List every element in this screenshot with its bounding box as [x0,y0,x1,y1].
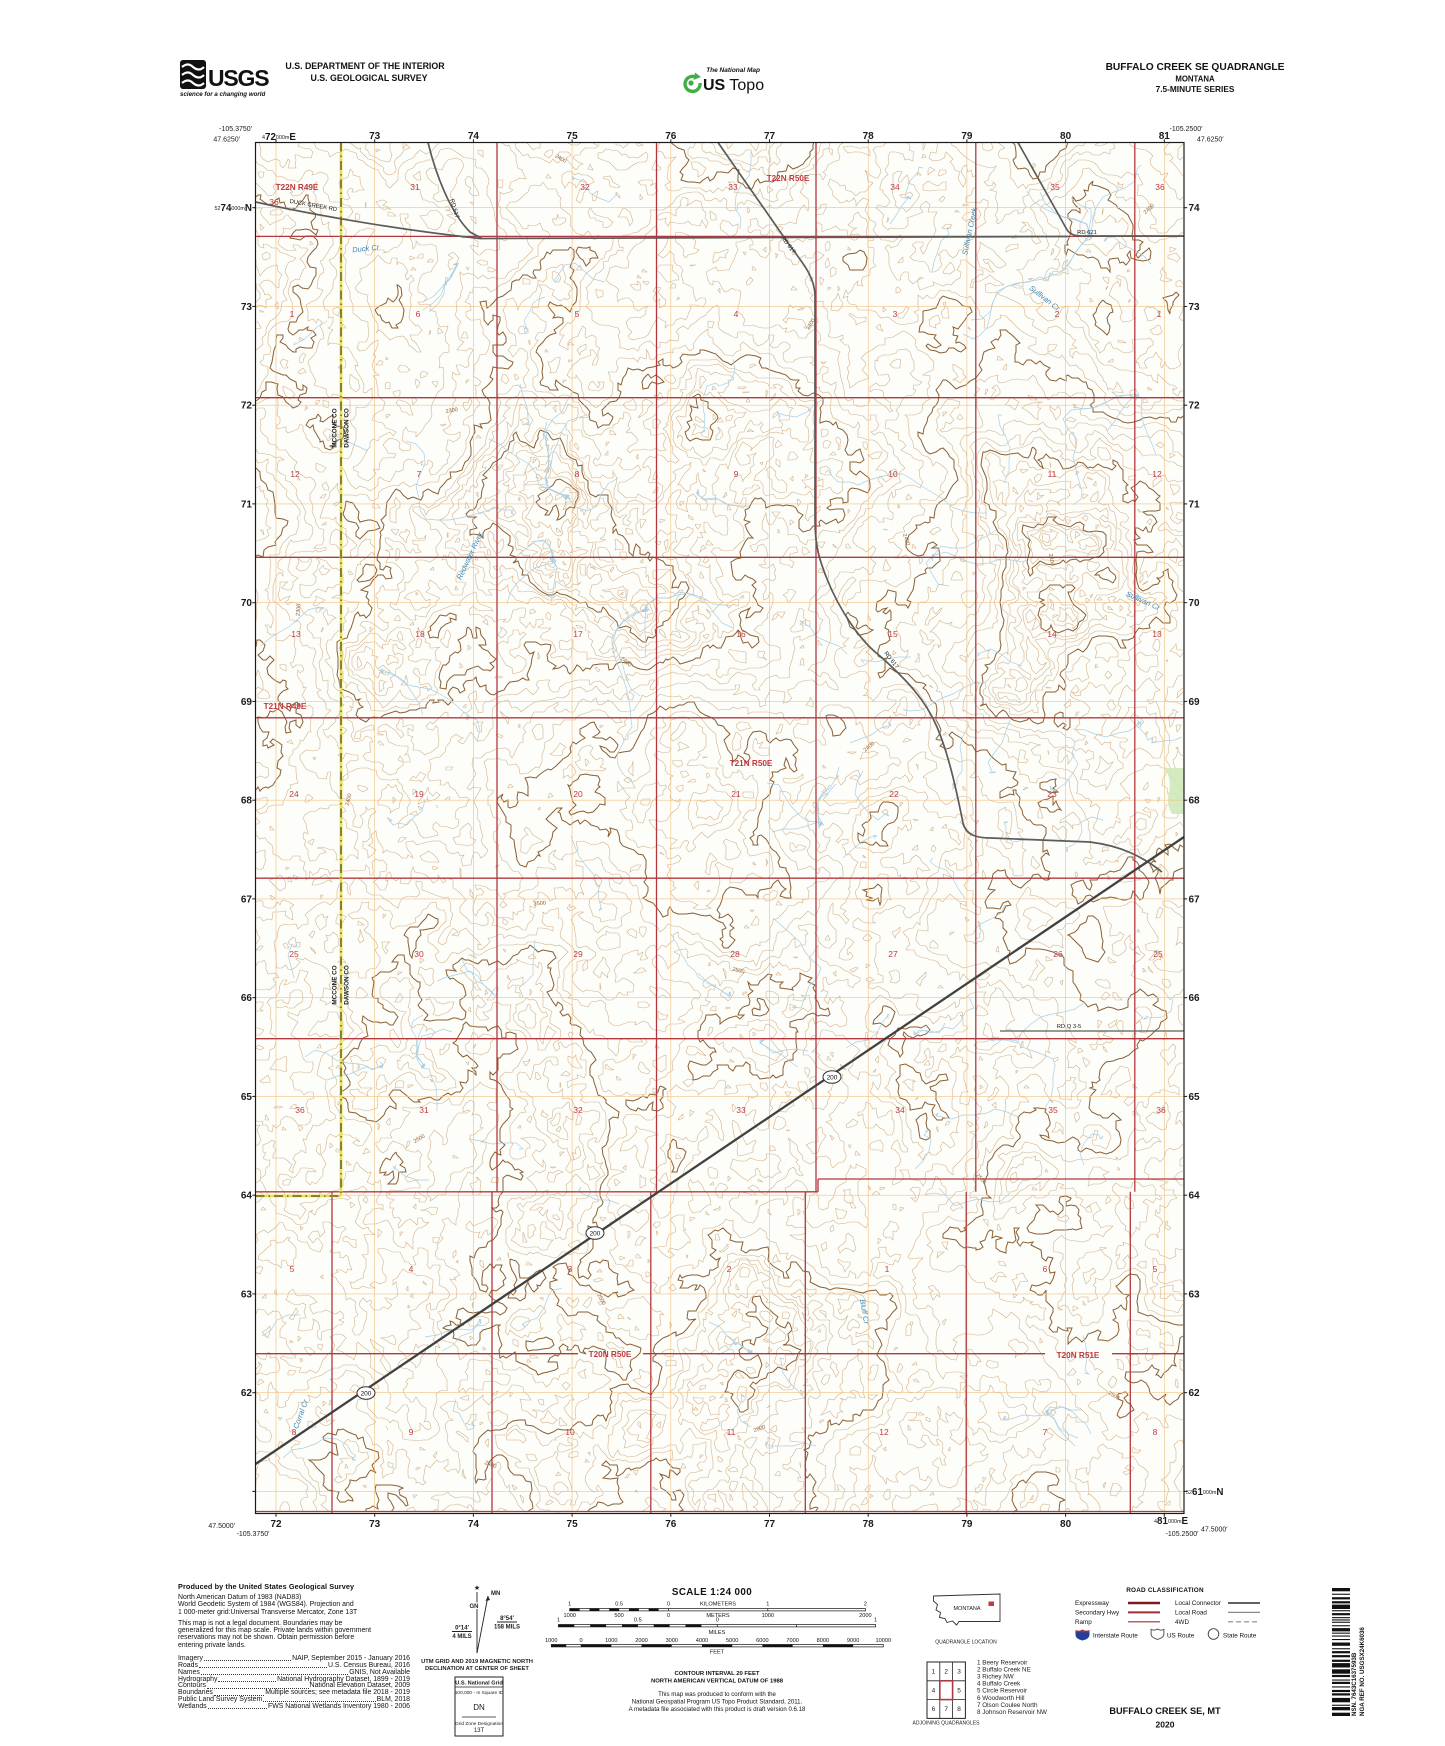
svg-text:500: 500 [614,1613,623,1619]
svg-text:12: 12 [290,469,300,479]
svg-text:T21N R49E: T21N R49E [264,702,307,711]
svg-text:79: 79 [961,131,973,142]
svg-text:27: 27 [888,949,898,959]
svg-text:8: 8 [575,469,580,479]
svg-text:T22N R50E: T22N R50E [767,174,810,183]
svg-text:2 Buffalo Creek NE: 2 Buffalo Creek NE [977,1667,1031,1674]
svg-text:7: 7 [1043,1427,1048,1437]
svg-text:34: 34 [890,182,900,192]
svg-text:CONTOUR INTERVAL 20 FEET: CONTOUR INTERVAL 20 FEET [675,1671,760,1677]
svg-text:6000: 6000 [756,1638,768,1644]
svg-text:8°54′: 8°54′ [500,1616,514,1622]
svg-text:72: 72 [1189,401,1201,412]
svg-text:MILES: MILES [709,1630,726,1636]
svg-text:DECLINATION AT CENTER OF SHEET: DECLINATION AT CENTER OF SHEET [425,1666,529,1672]
svg-text:31: 31 [410,182,420,192]
svg-text:BUFFALO CREEK SE QUADRANGLE: BUFFALO CREEK SE QUADRANGLE [1106,62,1285,73]
svg-text:76: 76 [665,131,677,142]
svg-text:69: 69 [241,697,253,708]
svg-text:2: 2 [727,1264,732,1274]
svg-text:2: 2 [944,1669,948,1676]
svg-text:158 MILS: 158 MILS [494,1625,520,1631]
svg-text:5274000mN: 5274000mN [215,203,252,214]
svg-text:US Topo: US Topo [703,77,764,94]
svg-text:72: 72 [270,1519,282,1530]
svg-text:33: 33 [736,1105,746,1115]
svg-text:67: 67 [241,894,253,905]
svg-text:8 Johnson Reservoir NW: 8 Johnson Reservoir NW [977,1709,1047,1716]
svg-text:USGS: USGS [208,65,269,91]
svg-text:MN: MN [491,1591,500,1597]
svg-text:The National Map: The National Map [706,67,760,74]
svg-text:11: 11 [727,1427,736,1437]
svg-text:6: 6 [1043,1264,1048,1274]
svg-text:U.S. GEOLOGICAL SURVEY: U.S. GEOLOGICAL SURVEY [311,73,428,83]
svg-text:2500: 2500 [534,900,547,907]
svg-text:2000: 2000 [635,1638,647,1644]
svg-text:79: 79 [961,1519,973,1530]
svg-text:14: 14 [1047,629,1057,639]
svg-text:Interstate Route: Interstate Route [1093,1633,1138,1640]
svg-text:3000: 3000 [666,1638,678,1644]
svg-text:SCALE 1:24 000: SCALE 1:24 000 [672,1587,752,1598]
svg-text:36: 36 [295,1105,305,1115]
svg-text:20: 20 [573,789,583,799]
svg-text:3: 3 [893,309,898,319]
svg-text:63: 63 [241,1289,253,1300]
svg-text:481000mE: 481000mE [1154,1516,1188,1527]
svg-text:★: ★ [474,1584,480,1592]
svg-text:36: 36 [1156,1105,1166,1115]
svg-text:1000: 1000 [563,1613,575,1619]
svg-text:2: 2 [864,1602,867,1608]
svg-text:5: 5 [290,1264,295,1274]
svg-text:-105.3750′: -105.3750′ [219,126,253,133]
svg-text:12: 12 [879,1427,889,1437]
svg-text:76: 76 [665,1519,677,1530]
svg-text:T20N R50E: T20N R50E [589,1350,632,1359]
svg-text:78: 78 [863,1519,875,1530]
svg-text:7: 7 [417,469,422,479]
svg-text:18: 18 [415,629,425,639]
svg-text:0.5: 0.5 [615,1602,623,1608]
svg-text:A metadata file associated wit: A metadata file associated with this pro… [629,1706,806,1713]
svg-text:13: 13 [291,629,301,639]
svg-text:4WD: 4WD [1175,1619,1189,1626]
svg-text:69: 69 [1189,697,1201,708]
svg-text:5261000mN: 5261000mN [1186,1487,1223,1498]
svg-text:Local Connector: Local Connector [1175,1600,1221,1607]
svg-text:22: 22 [889,789,899,799]
svg-text:6 Woodworth Hill: 6 Woodworth Hill [977,1695,1024,1702]
svg-text:0: 0 [716,1618,719,1624]
svg-text:71: 71 [241,499,253,510]
svg-text:7.5-MINUTE SERIES: 7.5-MINUTE SERIES [1156,84,1235,94]
svg-text:68: 68 [241,796,253,807]
svg-text:6: 6 [416,309,421,319]
svg-text:80: 80 [1060,131,1072,142]
svg-text:81: 81 [1159,131,1171,142]
svg-text:Secondary Hwy: Secondary Hwy [1075,1609,1120,1616]
svg-text:47.6250′: 47.6250′ [1197,137,1224,144]
svg-text:24: 24 [289,789,299,799]
svg-text:3: 3 [957,1669,961,1676]
svg-text:9: 9 [409,1427,414,1437]
svg-text:7000: 7000 [786,1638,798,1644]
svg-text:100,000 - m Square ID: 100,000 - m Square ID [455,1690,504,1696]
svg-text:12: 12 [1152,469,1162,479]
svg-text:16: 16 [736,629,746,639]
svg-text:72: 72 [241,401,253,412]
svg-text:62: 62 [1189,1388,1201,1399]
svg-text:UTM GRID AND 2019 MAGNETIC NOR: UTM GRID AND 2019 MAGNETIC NORTH [421,1659,533,1665]
svg-text:78: 78 [863,131,875,142]
svg-text:U.S. DEPARTMENT OF THE INTERIO: U.S. DEPARTMENT OF THE INTERIOR [285,61,445,71]
svg-text:47.5000′: 47.5000′ [1201,1527,1228,1534]
svg-text:1000: 1000 [762,1613,774,1619]
svg-text:1: 1 [290,309,295,319]
svg-text:77: 77 [764,131,776,142]
svg-text:5: 5 [575,309,580,319]
svg-text:74: 74 [468,1519,480,1530]
svg-text:5 Circle Reservoir: 5 Circle Reservoir [977,1688,1027,1695]
svg-text:0.5: 0.5 [634,1618,642,1624]
svg-text:33: 33 [728,182,738,192]
svg-text:34: 34 [895,1105,905,1115]
svg-text:5: 5 [1153,1264,1158,1274]
svg-text:62: 62 [241,1388,253,1399]
svg-text:10: 10 [565,1427,575,1437]
svg-text:NGA REF NO. USGSX24K6036: NGA REF NO. USGSX24K6036 [1359,1627,1366,1716]
svg-text:-105.2500′: -105.2500′ [1170,126,1204,133]
svg-text:RD Q 3-5: RD Q 3-5 [1057,1024,1081,1030]
svg-text:DN: DN [473,1703,485,1712]
svg-text:36: 36 [269,197,279,207]
svg-text:8: 8 [1153,1427,1158,1437]
svg-text:3 Richey NW: 3 Richey NW [977,1674,1014,1681]
svg-text:1: 1 [932,1669,936,1676]
svg-text:70: 70 [1189,598,1201,609]
svg-text:200: 200 [590,1230,601,1237]
svg-text:MCCONE CO: MCCONE CO [332,408,339,447]
svg-text:-105.3750′: -105.3750′ [237,1531,271,1538]
svg-text:T21N R50E: T21N R50E [730,759,773,768]
svg-text:4000: 4000 [696,1638,708,1644]
svg-text:2020: 2020 [1156,1720,1175,1730]
svg-text:4 MILS: 4 MILS [452,1634,471,1640]
svg-text:MCCONE CO: MCCONE CO [332,965,339,1004]
svg-text:66: 66 [1189,993,1201,1004]
svg-text:1: 1 [766,1602,769,1608]
svg-text:25: 25 [1153,949,1163,959]
svg-text:ADJOINING QUADRANGLES: ADJOINING QUADRANGLES [913,1721,981,1727]
svg-text:MONTANA: MONTANA [953,1606,980,1612]
svg-text:3: 3 [568,1264,573,1274]
svg-text:75: 75 [567,1519,579,1530]
svg-text:0°14′: 0°14′ [455,1626,469,1632]
svg-text:7 Olson Coulee North: 7 Olson Coulee North [977,1702,1038,1709]
svg-text:4: 4 [409,1264,414,1274]
svg-text:71: 71 [1189,499,1201,510]
svg-text:1: 1 [568,1602,571,1608]
svg-text:29: 29 [573,949,583,959]
svg-text:4: 4 [932,1687,936,1694]
svg-text:64: 64 [241,1191,253,1202]
svg-text:8: 8 [957,1706,961,1713]
svg-text:1: 1 [885,1264,890,1274]
svg-text:1000: 1000 [545,1638,557,1644]
svg-text:Expressway: Expressway [1075,1600,1110,1607]
svg-text:0: 0 [580,1638,583,1644]
svg-text:Ramp: Ramp [1075,1619,1092,1626]
svg-text:FEET: FEET [710,1650,725,1656]
svg-text:US Route: US Route [1167,1633,1195,1640]
svg-text:68: 68 [1189,796,1201,807]
svg-text:28: 28 [730,949,740,959]
svg-text:1: 1 [874,1618,877,1624]
svg-text:T20N R51E: T20N R51E [1057,1351,1100,1360]
svg-text:9000: 9000 [847,1638,859,1644]
svg-text:This map was produced to confo: This map was produced to conform with th… [658,1691,776,1698]
svg-text:KILOMETERS: KILOMETERS [700,1602,736,1608]
svg-text:MONTANA: MONTANA [1175,75,1215,84]
svg-text:35: 35 [1048,1105,1058,1115]
svg-text:1 Beery Reservoir: 1 Beery Reservoir [977,1660,1027,1667]
svg-text:ROAD CLASSIFICATION: ROAD CLASSIFICATION [1126,1587,1204,1594]
svg-text:8000: 8000 [817,1638,829,1644]
svg-text:National Geospatial Program US: National Geospatial Program US Topo Prod… [632,1699,803,1706]
svg-text:26: 26 [1053,949,1063,959]
svg-text:73: 73 [241,302,253,313]
svg-text:6: 6 [932,1706,936,1713]
svg-text:11: 11 [1048,469,1057,479]
svg-text:2000: 2000 [859,1613,871,1619]
svg-text:1: 1 [557,1618,560,1624]
svg-text:5: 5 [957,1687,961,1694]
svg-text:NSN. 7643C1637593B: NSN. 7643C1637593B [1351,1652,1358,1716]
svg-text:GN: GN [470,1604,479,1610]
svg-text:70: 70 [241,598,253,609]
svg-text:47.6250′: 47.6250′ [213,137,240,144]
svg-text:472000mE: 472000mE [262,132,296,143]
svg-text:1000: 1000 [605,1638,617,1644]
svg-text:66: 66 [241,993,253,1004]
svg-text:65: 65 [1189,1092,1201,1103]
svg-text:science for a changing world: science for a changing world [180,91,265,98]
svg-text:10: 10 [888,469,898,479]
svg-text:47.5000′: 47.5000′ [208,1523,235,1530]
svg-text:35: 35 [1050,182,1060,192]
svg-text:-105.2500′: -105.2500′ [1166,1531,1200,1538]
svg-text:32: 32 [580,182,590,192]
svg-text:7: 7 [944,1706,948,1713]
svg-text:9: 9 [734,469,739,479]
svg-text:13T: 13T [474,1728,485,1734]
svg-text:NORTH AMERICAN VERTICAL DATUM: NORTH AMERICAN VERTICAL DATUM OF 1988 [651,1679,784,1685]
svg-text:1: 1 [1157,309,1162,319]
svg-text:63: 63 [1189,1289,1201,1300]
svg-text:23: 23 [1047,789,1057,799]
svg-text:13: 13 [1152,629,1162,639]
svg-text:21: 21 [731,789,741,799]
svg-text:17: 17 [573,629,583,639]
svg-text:36: 36 [1155,182,1165,192]
svg-text:73: 73 [369,1519,381,1530]
svg-text:73: 73 [369,131,381,142]
svg-text:0: 0 [667,1613,670,1619]
svg-text:4 Buffalo Creek: 4 Buffalo Creek [977,1681,1021,1688]
svg-text:DAWSON CO: DAWSON CO [344,965,351,1005]
svg-text:5000: 5000 [726,1638,738,1644]
svg-text:T22N R49E: T22N R49E [276,183,319,192]
svg-text:Local Road: Local Road [1175,1609,1207,1616]
svg-text:4: 4 [734,309,739,319]
svg-text:State Route: State Route [1223,1633,1257,1640]
svg-text:25: 25 [289,949,299,959]
svg-text:75: 75 [567,131,579,142]
svg-text:67: 67 [1189,894,1201,905]
svg-text:74: 74 [468,131,480,142]
svg-text:31: 31 [419,1105,429,1115]
svg-text:73: 73 [1189,302,1201,313]
svg-text:0: 0 [667,1602,670,1608]
svg-text:QUADRANGLE LOCATION: QUADRANGLE LOCATION [935,1640,997,1646]
svg-text:74: 74 [1189,203,1201,214]
svg-text:200: 200 [827,1074,838,1081]
svg-text:U.S. National Grid: U.S. National Grid [455,1681,503,1687]
svg-text:15: 15 [888,629,898,639]
svg-text:2300: 2300 [295,604,302,617]
svg-text:BUFFALO CREEK SE, MT: BUFFALO CREEK SE, MT [1109,1706,1221,1716]
svg-text:64: 64 [1189,1191,1201,1202]
svg-text:10000: 10000 [876,1638,892,1644]
svg-text:80: 80 [1060,1519,1072,1530]
svg-text:30: 30 [414,949,424,959]
svg-text:19: 19 [414,789,424,799]
svg-text:77: 77 [764,1519,776,1530]
svg-text:DAWSON CO: DAWSON CO [344,408,351,448]
svg-text:65: 65 [241,1092,253,1103]
svg-text:Grid Zone Designation: Grid Zone Designation [455,1721,503,1727]
svg-text:RD 621: RD 621 [1077,230,1097,236]
svg-text:200: 200 [361,1390,372,1397]
svg-text:32: 32 [573,1105,583,1115]
